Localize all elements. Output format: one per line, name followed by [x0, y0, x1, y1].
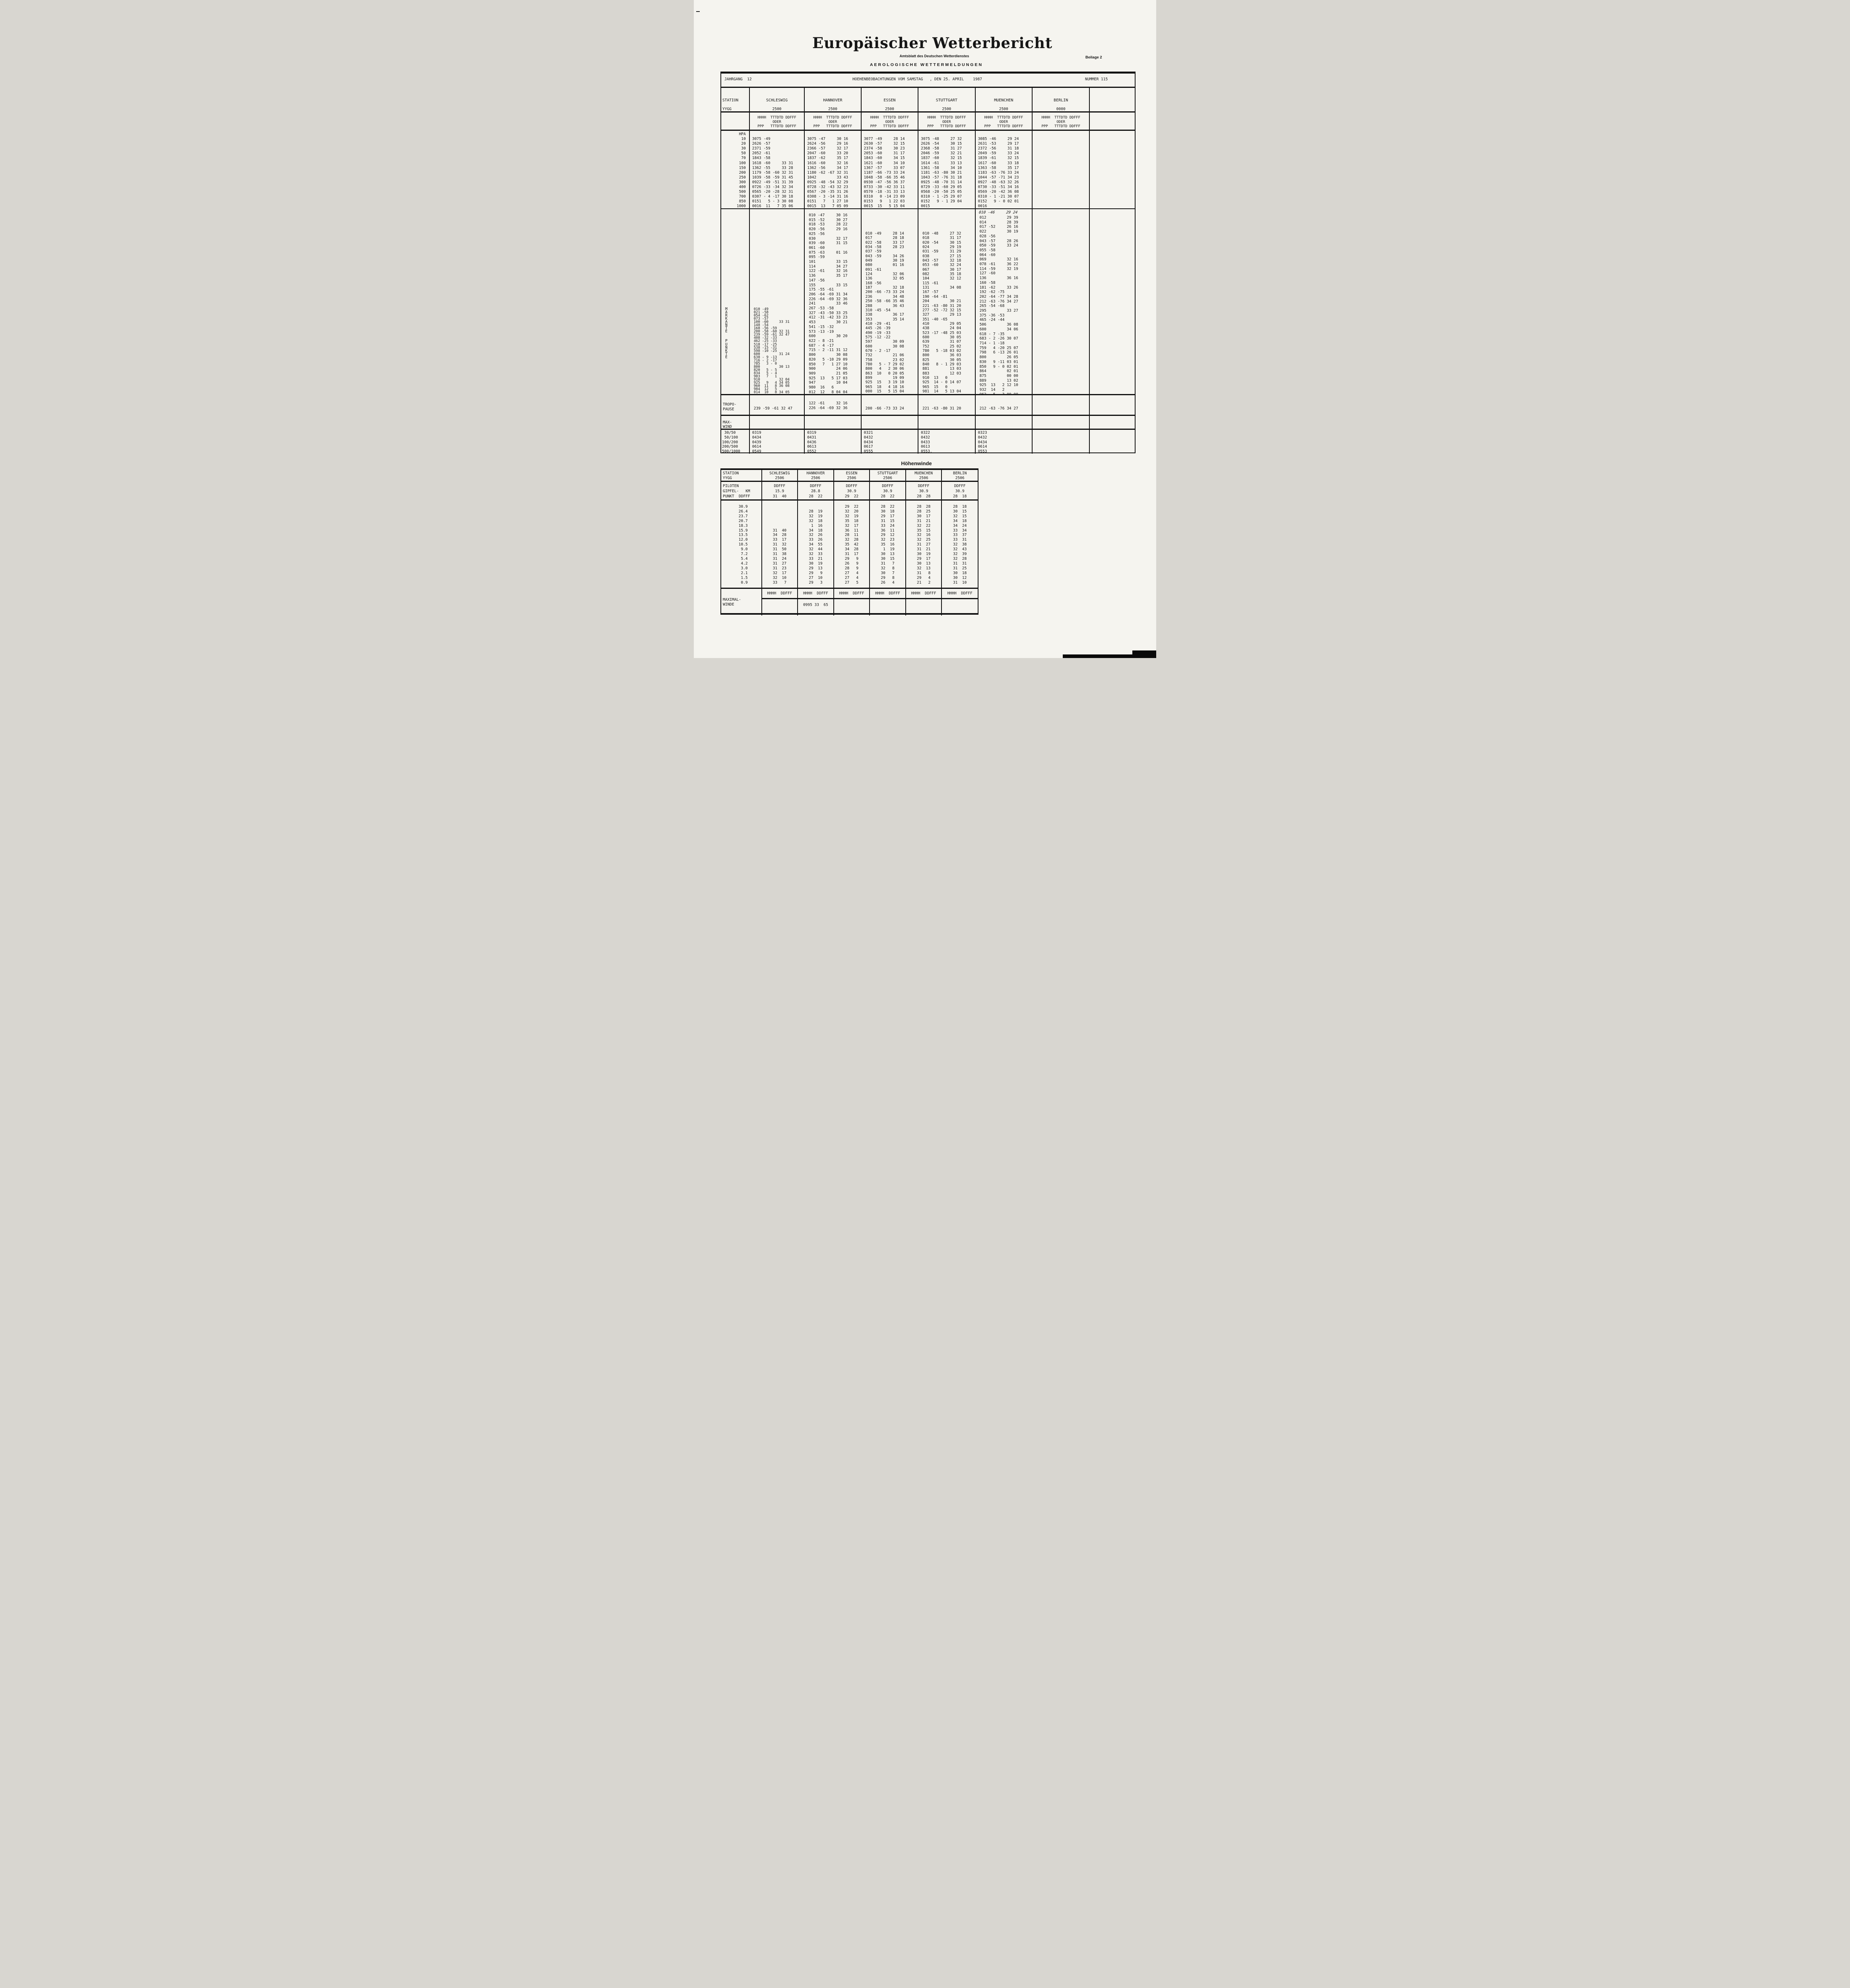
sig-col-schleswig: 010 -49 021 -58 054 -62 073 -57 100 -60 …	[750, 209, 805, 394]
winds-essen: 29 22 32 20 32 19 35 18 32 17 36 11 28 1…	[834, 501, 870, 588]
t2-station-stuttgart: STUTTGART2506	[870, 470, 906, 481]
jahrgang-label: JAHRGANG 12	[724, 77, 752, 82]
observation-label: HOEHENBEOBACHTUNGEN VOM SAMSTAG , DEN 25…	[852, 77, 982, 82]
piloten-hannover: DDFFF 28.8 28 22	[798, 482, 834, 499]
sig-col-muenchen: 010 -46 29 24 012 29 39 014 28 39 017 -5…	[976, 209, 1033, 394]
piloten-stuttgart: DDFFF 30.9 28 22	[870, 482, 906, 499]
hoehenwinde-title: Höhenwinde	[861, 460, 972, 466]
station-muenchen: MUENCHEN2500	[976, 88, 1033, 111]
t2-station-berlin: BERLIN2506	[942, 470, 978, 481]
station-essen: ESSEN2500	[862, 88, 918, 111]
tropo-essen: 200 -66 -73 33 24	[862, 395, 918, 415]
winds-muenchen: 28 28 28 25 30 17 31 21 32 22 35 15 32 1…	[906, 501, 942, 588]
subheader-schleswig: HHHH TTTDTD DDFFF ODER PPP TTTDTD DDFFF	[750, 113, 805, 130]
scan-artifact-dash	[696, 11, 700, 12]
scan-artifact-corner	[1132, 650, 1156, 658]
station-header-row: STATION YYGG SCHLESWIG2500 HANNOVER2500 …	[721, 88, 1135, 113]
page-title: Europäischer Wetterbericht	[785, 34, 1079, 52]
tropo-muenchen: 212 -63 -76 34 27	[976, 395, 1033, 415]
std-col-essen: 3077 -49 28 14 2630 -57 32 15 2374 -58 3…	[862, 131, 918, 208]
code-subheader-row: HHHH TTTDTD DDFFF ODER PPP TTTDTD DDFFF …	[721, 113, 1135, 131]
handwritten-entry: 010 -46 29 24	[978, 210, 1018, 215]
piloten-schleswig: DDFFF 15.9 31 40	[762, 482, 798, 499]
nummer-label: NUMMER 115	[1085, 77, 1108, 82]
subheader-berlin: HHHH TTTDTD DDFFF ODER PPP TTTDTD DDFFF	[1033, 113, 1090, 130]
piloten-muenchen: DDFFF 30.9 28 28	[906, 482, 942, 499]
sig-col-berlin	[1033, 209, 1090, 394]
bands-muenchen: 0323 0432 0434 0614 0553	[976, 430, 1033, 454]
bands-stuttgart: 0322 0432 0433 0613 0553.	[918, 430, 975, 454]
winds-schleswig: 31 40 34 28 33 17 31 32 31 50 31 38 31 2…	[762, 501, 798, 588]
t2-station-hannover: HANNOVER2506	[798, 470, 834, 481]
bands-schleswig: 0319 0434 0439 0614 0549	[750, 430, 805, 454]
trailing-column	[1090, 88, 1135, 111]
issue-bar: JAHRGANG 12 HOEHENBEOBACHTUNGEN VOM SAMS…	[721, 74, 1135, 88]
sig-col-essen: 010 -49 28 14 017 28 18 022 -58 33 17 03…	[862, 209, 918, 394]
std-col-hannover: 3075 -47 30 16 2624 -56 29 16 2366 -57 3…	[805, 131, 861, 208]
bands-essen: 0321 0432 0434 0617 0555	[862, 430, 918, 454]
t2-station-schleswig: SCHLESWIG2506	[762, 470, 798, 481]
subheader-essen: HHHH TTTDTD DDFFF ODER PPP TTTDTD DDFFF	[862, 113, 918, 130]
t2-wind-body: 30.9 26.4 23.7 20.7 18.3 15.9 13.5 12.0 …	[721, 501, 978, 588]
maxwind-berlin: HHHH DDFFF	[942, 589, 978, 615]
maxwind-schleswig: HHHH DDFFF	[762, 589, 798, 615]
piloten-essen: DDFFF 30.9 29 22	[834, 482, 870, 499]
tropo-hannover: 122 -61 32 16 226 -64 -69 32 36	[805, 395, 861, 415]
subheader-muenchen: HHHH TTTDTD DDFFF ODER PPP TTTDTD DDFFF	[976, 113, 1033, 130]
bands-berlin	[1033, 430, 1090, 454]
page-subtitle: Amtsblatt des Deutschen Wetterdienstes	[833, 54, 1036, 58]
aerological-table: JAHRGANG 12 HOEHENBEOBACHTUNGEN VOM SAMS…	[720, 72, 1136, 453]
tropo-berlin	[1033, 395, 1090, 415]
band-labels-column: 30/50 50/100 100/200 200/500 500/1000	[721, 430, 750, 454]
scanned-page: Europäischer Wetterbericht Amtsblatt des…	[694, 0, 1156, 658]
standard-levels-block: HPA 10 20 30 50 70 100 150 200 250 300 4…	[721, 131, 1135, 209]
t2-maximal-block: MAXIMAL- WINDE HHHH DDFFF HHHH DDFFF0995…	[721, 588, 978, 615]
markante-punkte-label: M A R K A N T E P U N K T E	[721, 209, 750, 394]
tropo-stuttgart: 221 -63 -80 31 20	[918, 395, 975, 415]
subheader-stuttgart: HHHH TTTDTD DDFFF ODER PPP TTTDTD DDFFF	[918, 113, 975, 130]
tropopause-row: TROPO- PAUSE 239 -59 -61 32 47 122 -61 3…	[721, 395, 1135, 416]
maximal-winde-label: MAXIMAL- WINDE	[721, 589, 762, 615]
hpa-levels-column: HPA 10 20 30 50 70 100 150 200 250 300 4…	[721, 131, 750, 208]
sig-col-hannover: 010 -47 30 16 015 -52 30 27 018 -53 28 2…	[805, 209, 861, 394]
wind-bands-block: 30/50 50/100 100/200 200/500 500/1000 03…	[721, 430, 1135, 454]
maxwind-stuttgart: HHHH DDFFF	[870, 589, 906, 615]
std-col-schleswig: 3075 -49 2626 -57 2371 -59 2052 -61 1843…	[750, 131, 805, 208]
t2-station-essen: ESSEN2506	[834, 470, 870, 481]
altitude-column: 30.9 26.4 23.7 20.7 18.3 15.9 13.5 12.0 …	[721, 501, 762, 588]
hoehenwinde-table: STATION YYGG SCHLESWIG2506 HANNOVER2506 …	[720, 468, 978, 615]
t2-station-muenchen: MUENCHEN2506	[906, 470, 942, 481]
max-wind-label-row: MAX- WIND	[721, 416, 1135, 430]
bands-hannover: 0319 0431 0436 0613 0552	[805, 430, 861, 454]
station-schleswig: SCHLESWIG2500	[750, 88, 805, 111]
tropo-schleswig: 239 -59 -61 32 47	[750, 395, 805, 415]
beilage-label: Beilage 2	[1085, 55, 1102, 60]
t2-station-label: STATION YYGG	[721, 470, 762, 481]
std-col-stuttgart: 3075 -48 27 32 2626 -54 30 15 2368 -58 3…	[918, 131, 975, 208]
piloten-berlin: DDFFF 30.9 28 18	[942, 482, 978, 499]
maxwind-muenchen: HHHH DDFFF	[906, 589, 942, 615]
tropopause-label: TROPO- PAUSE	[721, 395, 750, 415]
subheader-hannover: HHHH TTTDTD DDFFF ODER PPP TTTDTD DDFFF	[805, 113, 861, 130]
piloten-label: PILOTEN GIPFEL- KM PUNKT DDFFF	[721, 482, 762, 499]
t2-station-header: STATION YYGG SCHLESWIG2506 HANNOVER2506 …	[721, 470, 978, 482]
winds-hannover: 28 19 32 19 32 18 1 16 34 18 32 26 33 26…	[798, 501, 834, 588]
std-col-berlin	[1033, 131, 1090, 208]
significant-levels-block: M A R K A N T E P U N K T E 010 -49 021 …	[721, 209, 1135, 395]
winds-stuttgart: 28 22 30 18 29 17 31 15 33 24 36 11 29 1…	[870, 501, 906, 588]
maxwind-hannover: HHHH DDFFF0995 33 65	[798, 589, 834, 615]
t2-piloten-header: PILOTEN GIPFEL- KM PUNKT DDFFF DDFFF 15.…	[721, 482, 978, 501]
std-col-muenchen: 3085 -46 29 24 2631 -53 29 17 2372 -56 3…	[976, 131, 1033, 208]
maxwind-essen: HHHH DDFFF	[834, 589, 870, 615]
max-wind-label: MAX- WIND	[721, 416, 750, 429]
section-heading: AEROLOGISCHE WETTERMELDUNGEN	[809, 62, 1044, 67]
station-berlin: BERLIN0000	[1033, 88, 1090, 111]
sig-col-stuttgart: 010 -48 27 32 018 31 17 020 -54 30 15 02…	[918, 209, 975, 394]
station-hannover: HANNOVER2500	[805, 88, 861, 111]
winds-berlin: 28 18 30 15 32 15 34 18 34 24 33 34 33 3…	[942, 501, 978, 588]
station-header-label: STATION YYGG	[721, 88, 750, 111]
station-stuttgart: STUTTGART2500	[918, 88, 975, 111]
